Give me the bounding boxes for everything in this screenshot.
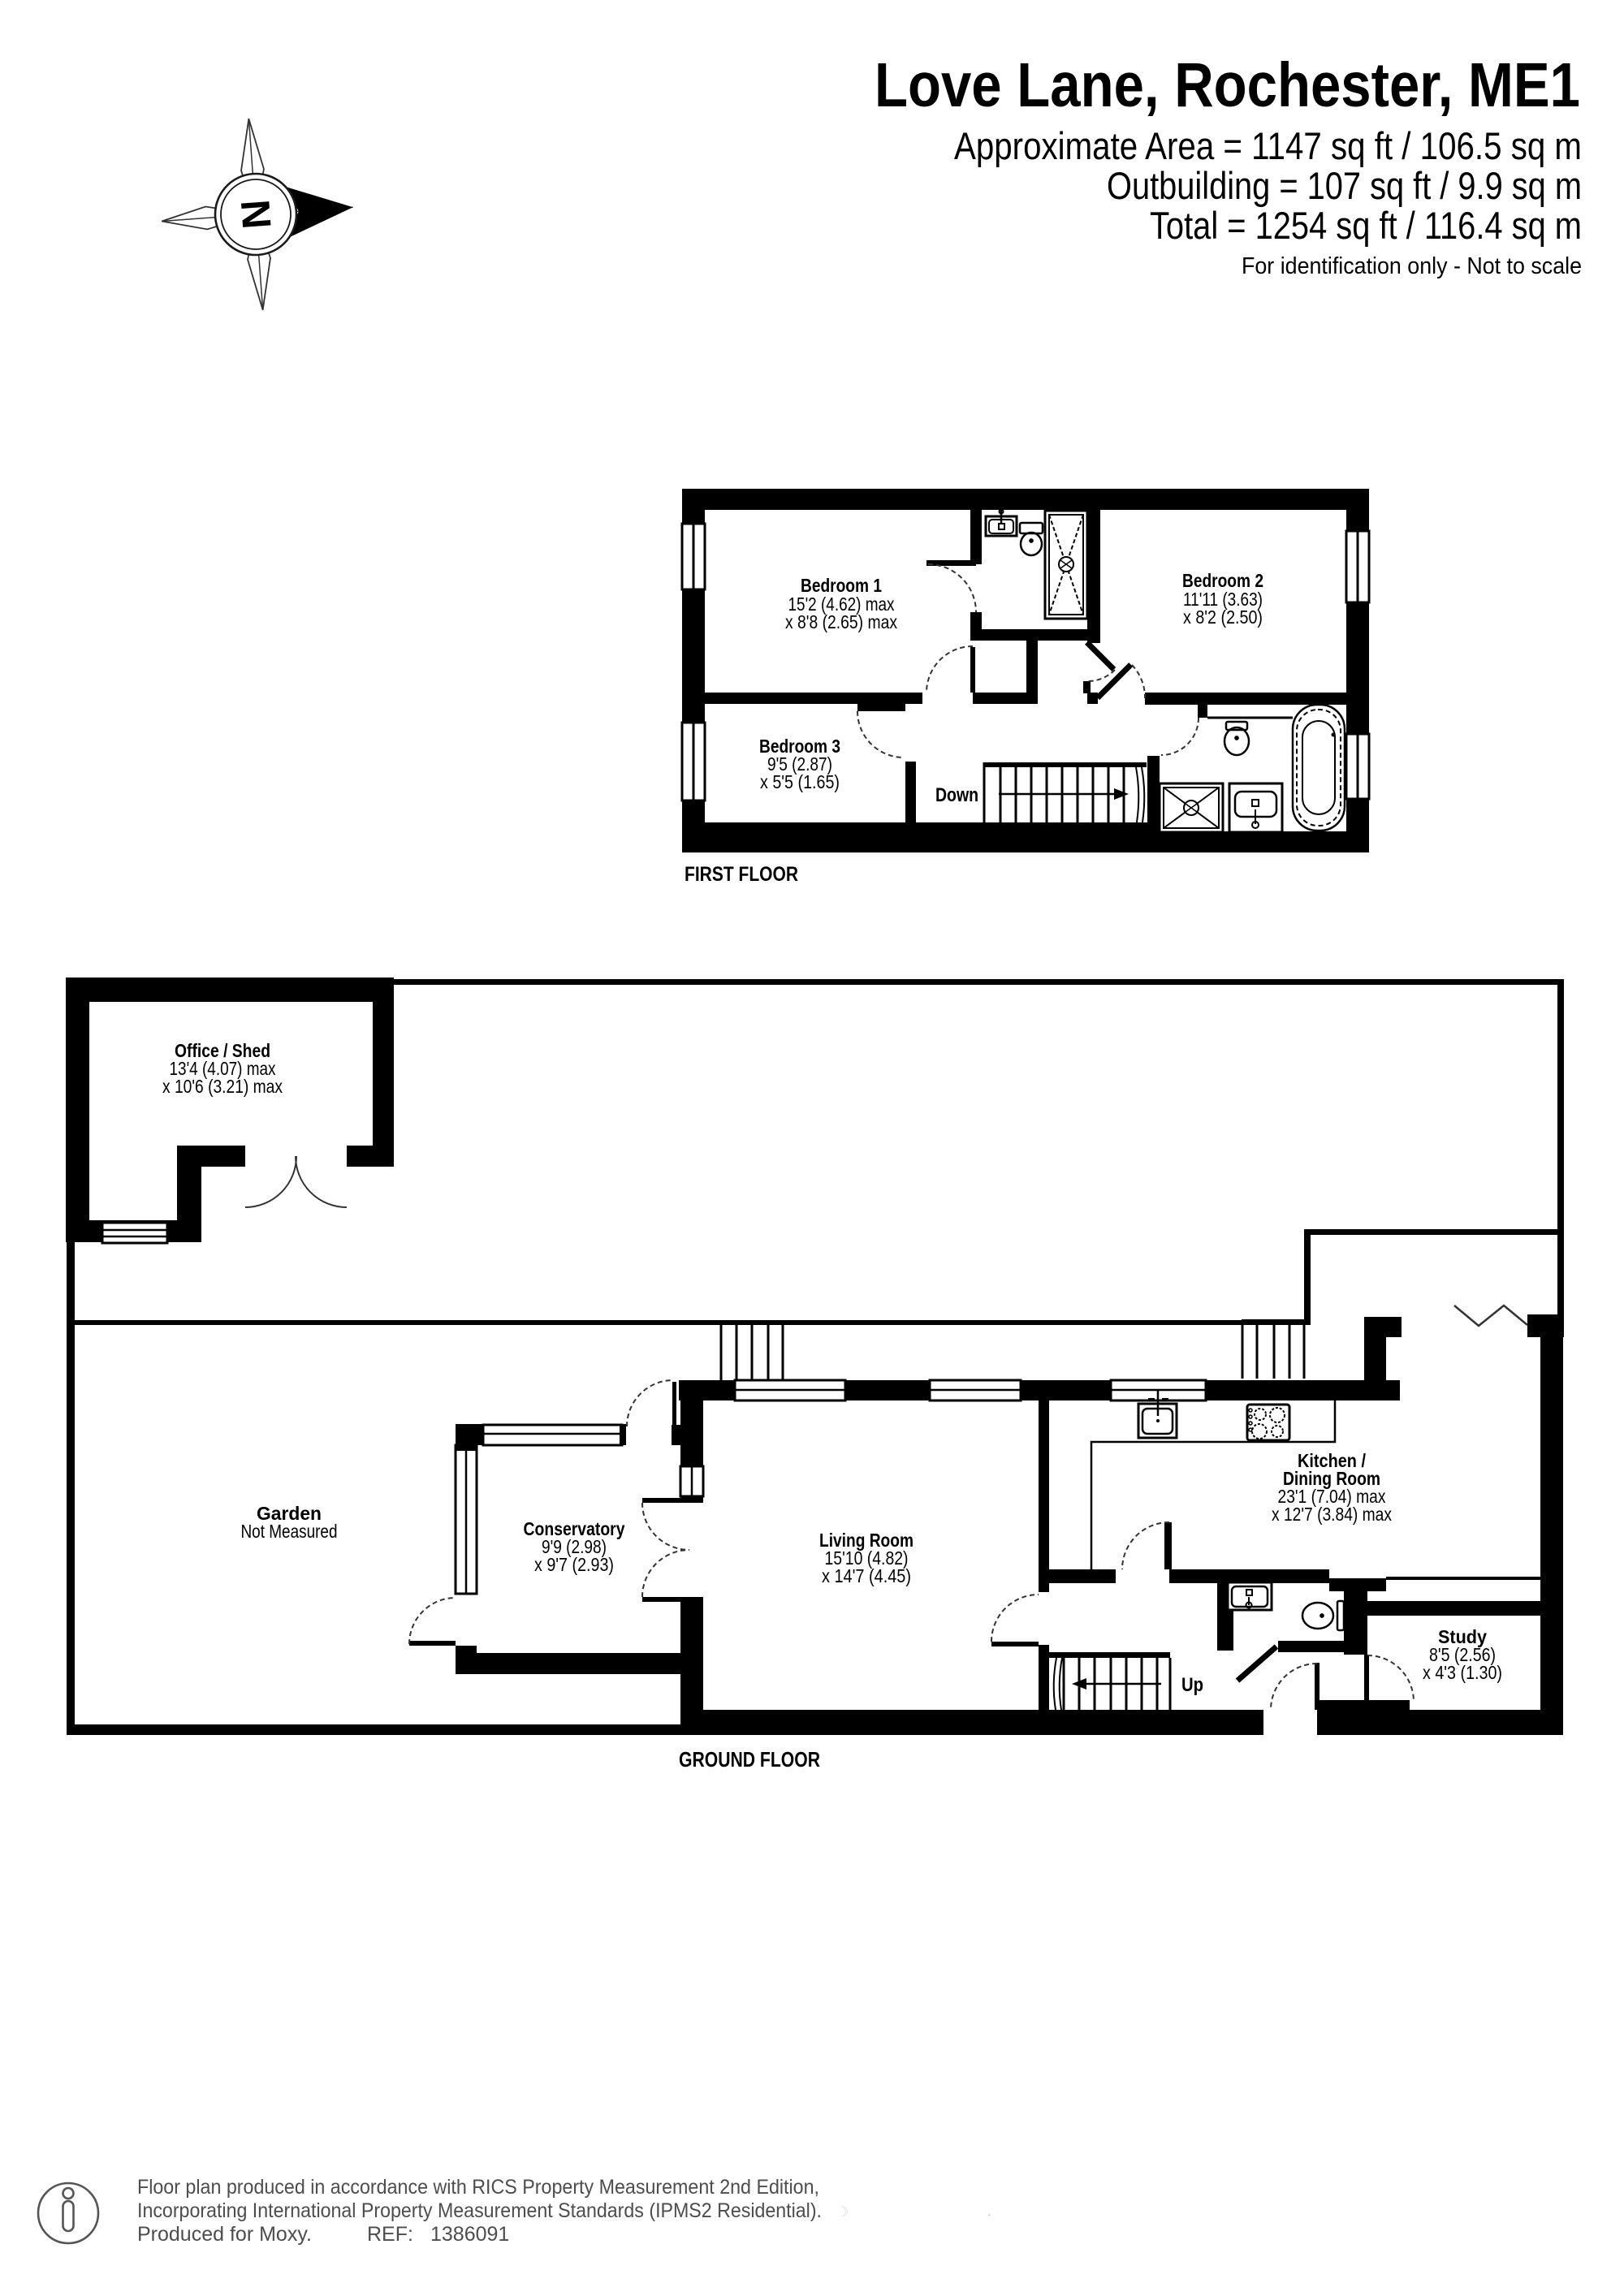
svg-text:Floor plan produced in accorda: Floor plan produced in accordance with R…	[137, 2176, 819, 2199]
svg-text:x 9'7 (2.93): x 9'7 (2.93)	[534, 1554, 614, 1575]
svg-text:1386091: 1386091	[430, 2223, 509, 2246]
svg-text:Outbuilding = 107 sq ft / 9.9: Outbuilding = 107 sq ft / 9.9 sq m	[1107, 164, 1582, 207]
svg-text:x 8'8 (2.65) max: x 8'8 (2.65) max	[785, 611, 897, 632]
svg-text:x 4'3 (1.30): x 4'3 (1.30)	[1423, 1662, 1502, 1683]
svg-text:Total = 1254 sq ft / 116.4 sq: Total = 1254 sq ft / 116.4 sq m	[1150, 204, 1582, 247]
svg-text:GROUND FLOOR: GROUND FLOOR	[679, 1747, 820, 1772]
svg-text:Not Measured: Not Measured	[241, 1521, 338, 1542]
svg-text:N: N	[232, 198, 279, 231]
svg-text:x 14'7 (4.45): x 14'7 (4.45)	[822, 1565, 911, 1586]
svg-text:x 10'6 (3.21) max: x 10'6 (3.21) max	[162, 1076, 283, 1097]
svg-text:Down: Down	[935, 784, 978, 806]
svg-text:Up: Up	[1181, 1674, 1203, 1696]
svg-text:For identification only - Not: For identification only - Not to scale	[1242, 253, 1582, 279]
svg-text:REF:: REF:	[367, 2223, 413, 2246]
svg-text:x 5'5 (1.65): x 5'5 (1.65)	[760, 771, 840, 792]
svg-text:x 12'7 (3.84) max: x 12'7 (3.84) max	[1272, 1504, 1392, 1525]
svg-text:Approximate Area = 1147 sq ft: Approximate Area = 1147 sq ft / 106.5 sq…	[954, 124, 1582, 167]
svg-text:x 8'2 (2.50): x 8'2 (2.50)	[1183, 606, 1263, 628]
svg-text:Love Lane, Rochester, ME1: Love Lane, Rochester, ME1	[875, 50, 1580, 120]
svg-text:☽: ☽	[836, 2204, 849, 2220]
svg-text:Incorporating International Pr: Incorporating International Property Mea…	[137, 2199, 822, 2222]
svg-text:.: .	[987, 2203, 991, 2219]
svg-text:FIRST FLOOR: FIRST FLOOR	[685, 863, 798, 886]
svg-text:Produced for Moxy.: Produced for Moxy.	[137, 2223, 312, 2246]
